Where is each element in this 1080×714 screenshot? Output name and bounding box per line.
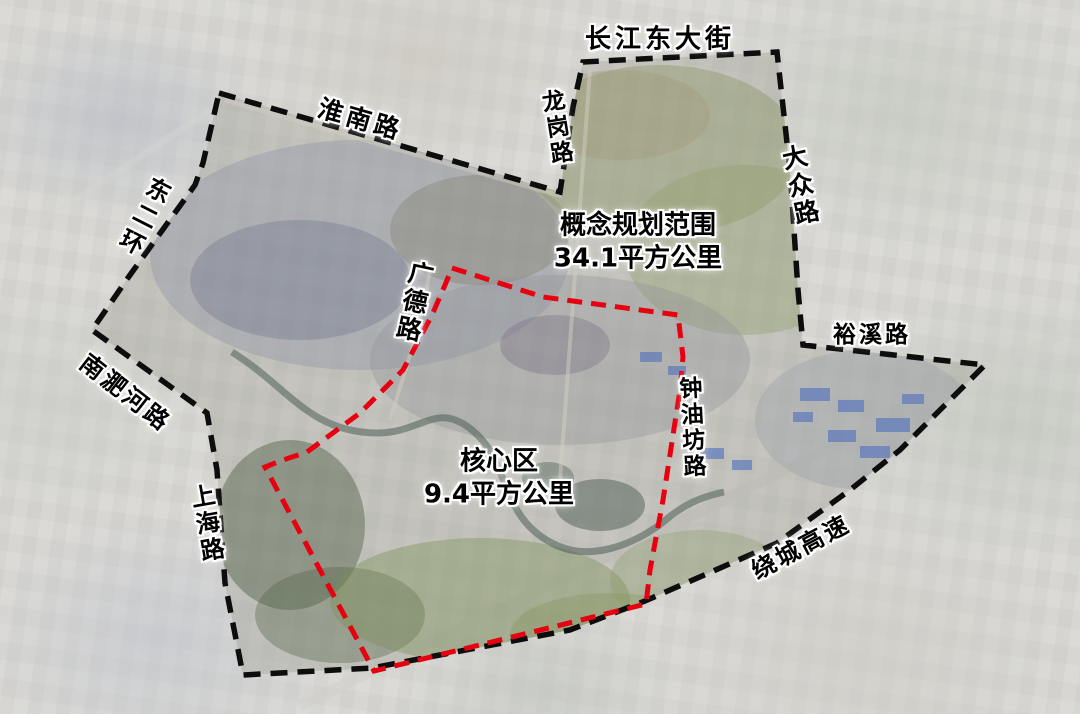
planning-area-size: 34.1平方公里 bbox=[554, 242, 722, 275]
core-area-size: 9.4平方公里 bbox=[424, 478, 574, 511]
planning-area-annotation: 概念规划范围 34.1平方公里 bbox=[554, 210, 722, 275]
road-label-changjiang-east-street: 长江东大街 bbox=[585, 19, 735, 56]
planning-area-title: 概念规划范围 bbox=[554, 210, 722, 243]
road-label-zhongyoufang-road: 钟油坊路 bbox=[670, 375, 709, 481]
core-area-annotation: 核心区 9.4平方公里 bbox=[424, 446, 574, 511]
map-canvas: 长江东大街 淮南路 龙岗路 东二环 大众路 裕溪路 南淝河路 广德路 钟油坊路 … bbox=[0, 0, 1080, 714]
core-area-title: 核心区 bbox=[424, 446, 574, 479]
road-label-yuxi-road: 裕溪路 bbox=[833, 315, 911, 349]
